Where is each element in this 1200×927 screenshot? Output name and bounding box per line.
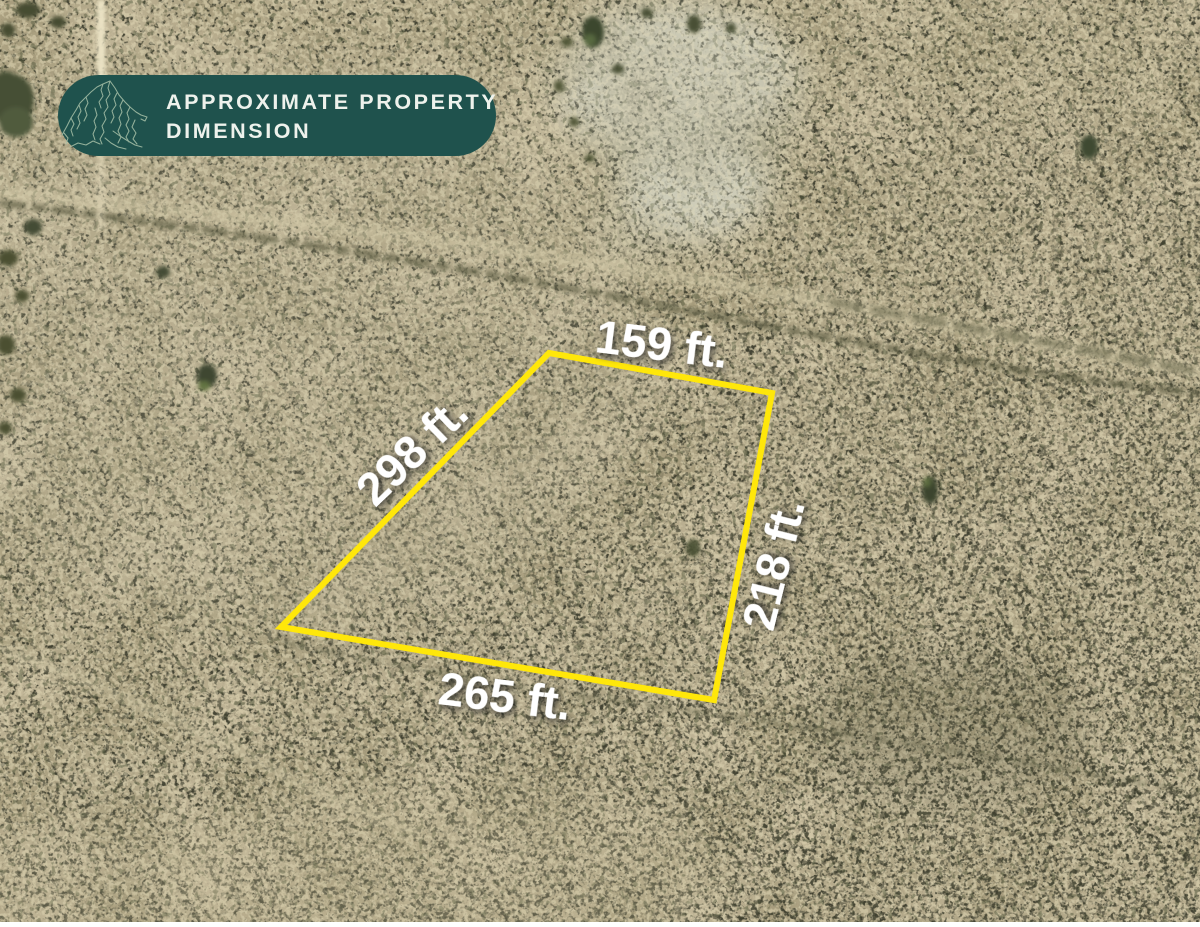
svg-text:APPROXIMATE PROPERTY: APPROXIMATE PROPERTY (166, 90, 498, 114)
svg-text:DIMENSION: DIMENSION (166, 119, 311, 143)
